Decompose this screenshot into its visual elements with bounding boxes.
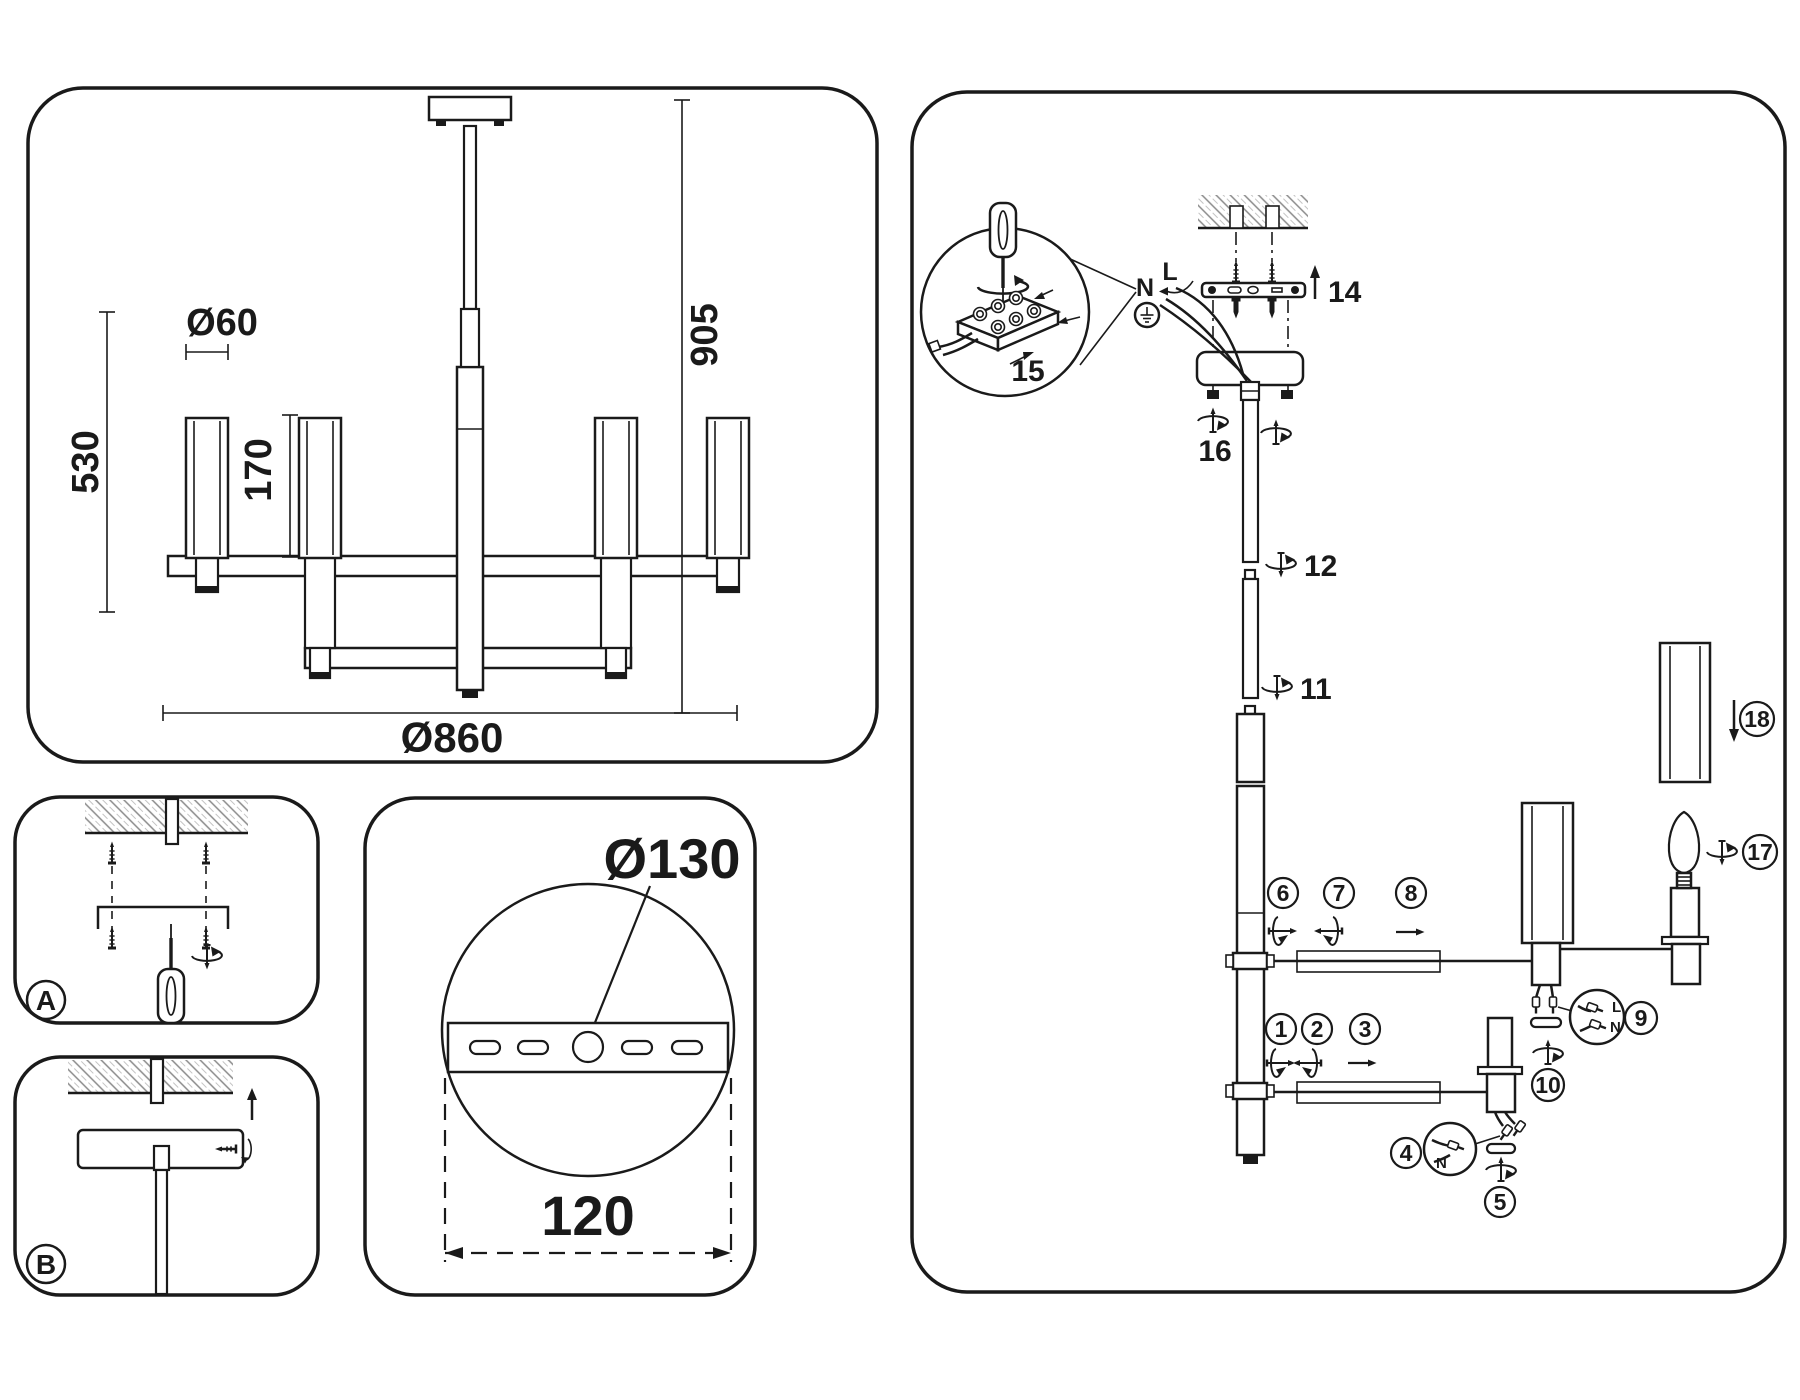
canopy-nut [1281, 390, 1293, 399]
supply-wires: N L [1135, 258, 1252, 383]
socket-tube [1488, 1018, 1512, 1068]
anchor-hole [1266, 206, 1279, 228]
canopy-rod [156, 1170, 167, 1294]
screw-icon [108, 927, 116, 949]
dim-total-height: 905 [684, 303, 726, 366]
rotate-icon [1314, 917, 1342, 945]
connector9-live-label: L [1612, 999, 1621, 1016]
shade [299, 418, 341, 558]
ground-icon [1135, 303, 1159, 327]
step-11-label: 11 [1300, 673, 1332, 706]
step-8-label: 8 [1405, 880, 1418, 906]
connector4-neutral-label: N [1436, 1155, 1447, 1172]
step-14-label: 14 [1328, 276, 1362, 309]
plate-diameter-label: Ø130 [604, 827, 741, 890]
downrod-joint [461, 309, 479, 367]
step-1-label: 1 [1275, 1016, 1288, 1042]
panel-plate: Ø130 120 [365, 798, 755, 1295]
rotate-icon [1269, 917, 1297, 945]
rotate-icon [1262, 676, 1292, 701]
rotate-icon [1267, 1049, 1295, 1077]
dim-lamp-height: 530 [65, 430, 107, 493]
column-end-cap [1243, 1155, 1258, 1164]
canopy-nut [1207, 390, 1219, 399]
shade [1522, 803, 1573, 943]
arm-hub [1233, 953, 1267, 969]
rotate-icon [1707, 841, 1737, 866]
rotate-icon [1293, 1049, 1321, 1077]
center-column [457, 367, 483, 690]
shade [707, 418, 749, 558]
lamp-holder-assembly [1662, 812, 1708, 984]
upper-candle-assembly [1522, 803, 1573, 1027]
wire-neutral-label: N [1136, 274, 1154, 302]
rod-section [1243, 579, 1258, 698]
column-section [1237, 714, 1264, 782]
rotate-icon [1266, 553, 1296, 578]
step-17-label: 17 [1747, 839, 1773, 865]
screw-icon [1232, 298, 1241, 319]
step-a-label: A [36, 985, 56, 1016]
diagram-canvas: Ø60 170 530 905 Ø860 [0, 0, 1800, 1400]
socket-cup [1672, 944, 1700, 984]
step-10-label: 10 [1535, 1072, 1561, 1098]
dim-shade-diameter: Ø60 [186, 302, 258, 344]
drop-tube-right [601, 556, 631, 648]
step-9-label: 9 [1635, 1005, 1648, 1031]
bulb-icon [1669, 812, 1699, 873]
panel-dimensions: Ø60 170 530 905 Ø860 [28, 88, 877, 762]
step-3-label: 3 [1359, 1016, 1372, 1042]
step-12-label: 12 [1304, 550, 1337, 583]
connector9-neutral-label: N [1610, 1019, 1621, 1036]
anchor-hole [1230, 206, 1243, 228]
rotate-icon [1261, 420, 1291, 445]
wire-plug-icon [1550, 997, 1557, 1014]
step-2-label: 2 [1311, 1016, 1324, 1042]
panel-step-a: A [15, 797, 318, 1023]
lower-candle-assembly [1478, 1018, 1526, 1153]
step-7-label: 7 [1333, 880, 1346, 906]
shade-ring [1531, 1018, 1561, 1027]
candle-cup [1532, 943, 1560, 985]
connector-detail-9: L N [1558, 990, 1624, 1044]
wire-plug-icon [1498, 1124, 1513, 1142]
arm-hub [1233, 1083, 1267, 1099]
ceiling-hatch [1198, 195, 1308, 228]
step-5-label: 5 [1494, 1189, 1507, 1215]
panel-step-b: B [15, 1057, 318, 1295]
rotate-icon [192, 945, 222, 970]
screw-icon [108, 842, 116, 864]
downrod [464, 126, 476, 309]
shade [595, 418, 637, 558]
ceiling-pin [151, 1059, 163, 1103]
socket-tube [1671, 888, 1699, 937]
shade [186, 418, 228, 558]
rotate-icon [1533, 1040, 1563, 1065]
screwdriver-icon [158, 924, 184, 1023]
loose-shade [1660, 643, 1710, 782]
step-4-label: 4 [1400, 1140, 1413, 1166]
step-6-label: 6 [1277, 880, 1290, 906]
arrow-icon [1348, 1060, 1377, 1067]
step-18-label: 18 [1744, 706, 1770, 732]
screw-icon [1232, 261, 1240, 283]
upper-arm-bar [168, 556, 738, 576]
screw-icon [202, 842, 210, 864]
rod-section [1243, 400, 1258, 562]
step-15-label: 15 [1011, 355, 1044, 388]
canopy-knob [154, 1146, 169, 1170]
wire-plug-icon [1533, 997, 1540, 1014]
panel-assembly: 14 N L [912, 92, 1785, 1292]
mounting-bar: 14 [1202, 261, 1362, 319]
drop-tube-left [305, 556, 335, 648]
rotate-icon [1486, 1157, 1516, 1182]
dim-shade-height: 170 [238, 438, 280, 501]
mounting-bracket [98, 907, 228, 929]
rod-coupler [1245, 570, 1255, 579]
screw-icon [1268, 261, 1276, 283]
step-16-label: 16 [1198, 435, 1231, 468]
wire-live-label: L [1162, 258, 1177, 286]
leader-line [592, 886, 650, 1030]
ceiling-pin [166, 799, 178, 844]
instruction-sheet: Ø60 170 530 905 Ø860 [0, 0, 1800, 1400]
mounting-bar [448, 1023, 728, 1072]
arrow-icon [1396, 929, 1425, 936]
rotate-icon [1198, 408, 1228, 433]
terminal-block-detail: 15 [921, 203, 1136, 396]
shade-ring [1487, 1144, 1515, 1153]
ceiling-canopy [429, 97, 511, 120]
step-b-label: B [36, 1249, 56, 1280]
mount-spacing-label: 120 [541, 1184, 634, 1247]
screw-icon [1268, 298, 1277, 319]
socket-cup [1487, 1074, 1515, 1112]
dim-total-diameter: Ø860 [401, 714, 504, 761]
chandelier-drawing [168, 97, 749, 698]
